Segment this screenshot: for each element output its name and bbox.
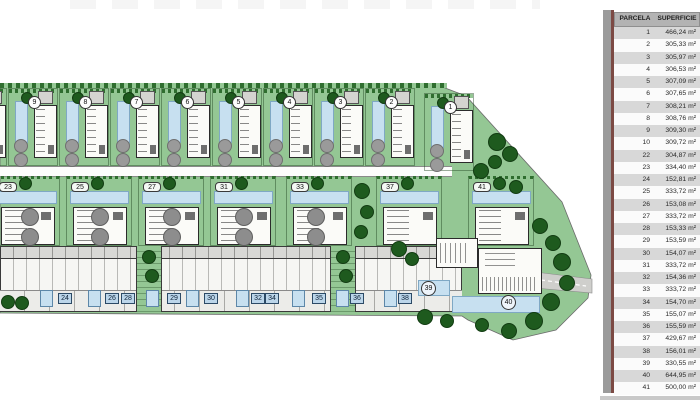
tree-icon	[19, 177, 32, 190]
patio-circle	[14, 139, 28, 153]
tree-icon	[360, 205, 374, 219]
pool	[219, 101, 232, 143]
tree-icon	[311, 177, 324, 190]
parcela-cell: 26	[614, 199, 650, 211]
plot-number-label: 39	[421, 281, 436, 296]
villa-building	[0, 105, 6, 158]
superficie-cell: 152,81 m²	[650, 174, 700, 186]
tree-icon	[493, 177, 506, 190]
table-header: PARCELA SUPERFICIE	[614, 12, 700, 27]
tree-icon	[417, 309, 433, 325]
table-row: 28 153,33 m²	[614, 223, 700, 235]
table-row: 8 308,76 m²	[614, 113, 700, 125]
superficie-cell: 308,76 m²	[650, 113, 700, 125]
tree-icon	[473, 163, 489, 179]
superficie-cell: 333,72 m²	[650, 284, 700, 296]
table-row: 22 304,87 m²	[614, 150, 700, 162]
patio-circle	[65, 139, 79, 153]
pool	[214, 191, 273, 204]
pool	[15, 101, 28, 143]
parcela-cell: 6	[614, 88, 650, 100]
parcela-cell: 7	[614, 101, 650, 113]
tree-icon	[502, 146, 518, 162]
plot-number-label: 40	[501, 295, 516, 310]
patio-circle-pair	[235, 208, 253, 246]
villa-plot: 37	[376, 176, 442, 246]
tree-icon	[145, 269, 159, 283]
parcela-cell: 3	[614, 52, 650, 64]
patio-circle	[65, 153, 79, 167]
parcela-cell: 22	[614, 150, 650, 162]
plot-number-label: 29	[167, 293, 181, 304]
table-row: 6 307,65 m²	[614, 88, 700, 100]
tree-icon	[1, 295, 15, 309]
townhouse-pool	[336, 290, 349, 307]
table-row: 30 154,07 m²	[614, 248, 700, 260]
plot-number-label: 24	[58, 293, 72, 304]
table-row: 26 153,08 m²	[614, 199, 700, 211]
villa-building	[136, 105, 159, 158]
parcela-cell: 10	[614, 137, 650, 149]
plot-number-label: 36	[350, 293, 364, 304]
tree-icon	[440, 314, 454, 328]
plot-number-label: 38	[398, 293, 412, 304]
pool	[431, 106, 444, 148]
plot-number-label: 1	[444, 101, 457, 114]
table-row: 36 155,59 m²	[614, 321, 700, 333]
plot-number-label: 6	[181, 96, 194, 109]
superficie-cell: 154,07 m²	[650, 248, 700, 260]
pool	[321, 101, 334, 143]
table-row: 40 644,95 m²	[614, 370, 700, 382]
screenshot-root: 10 9 8	[0, 0, 700, 400]
patio-circle	[269, 139, 283, 153]
superficie-cell: 333,72 m²	[650, 186, 700, 198]
parcela-cell: 40	[614, 370, 650, 382]
plot-number-label: 2	[385, 96, 398, 109]
table-row: 25 333,72 m²	[614, 186, 700, 198]
column-header-superficie: SUPERFICIE	[655, 13, 699, 26]
parcela-cell: 37	[614, 333, 650, 345]
table-row: 29 153,59 m²	[614, 235, 700, 247]
parcela-cell: 41	[614, 382, 650, 394]
superficie-cell: 304,87 m²	[650, 150, 700, 162]
plot-number-label: 28	[121, 293, 135, 304]
parcela-cell: 5	[614, 76, 650, 88]
patio-circle	[320, 153, 334, 167]
plot-number-label: 37	[381, 182, 399, 192]
parcela-cell: 34	[614, 297, 650, 309]
patio-circle	[320, 139, 334, 153]
patio-circle	[218, 153, 232, 167]
villa-plot: 3	[314, 88, 364, 166]
superficie-cell: 333,72 m²	[650, 260, 700, 272]
table-row: 33 333,72 m²	[614, 284, 700, 296]
column-header-parcela: PARCELA	[615, 13, 655, 26]
superficie-cell: 153,08 m²	[650, 199, 700, 211]
superficie-cell: 156,01 m²	[650, 346, 700, 358]
villa-building	[34, 105, 57, 158]
parcela-cell: 27	[614, 211, 650, 223]
superficie-cell: 154,36 m²	[650, 272, 700, 284]
patio-circle	[14, 153, 28, 167]
parcela-cell: 1	[614, 27, 650, 39]
plot-number-label: 31	[215, 182, 233, 192]
patio-circle-pair	[91, 208, 109, 246]
pool	[0, 191, 57, 204]
pool	[372, 101, 385, 143]
tree-icon	[553, 253, 571, 271]
tree-icon	[354, 225, 368, 239]
villa-plot: 6	[161, 88, 211, 166]
tree-icon	[509, 180, 523, 194]
plot-number-label: 9	[28, 96, 41, 109]
pool	[142, 191, 201, 204]
table-row: 27 333,72 m²	[614, 211, 700, 223]
townhouse-pool	[384, 290, 397, 307]
superficie-cell: 466,24 m²	[650, 27, 700, 39]
tree-icon	[401, 177, 414, 190]
parcela-cell: 29	[614, 235, 650, 247]
parcela-cell: 2	[614, 39, 650, 51]
plot-number-label: 27	[143, 182, 161, 192]
table-row: 10 309,72 m²	[614, 137, 700, 149]
table-row: 38 156,01 m²	[614, 346, 700, 358]
parcela-cell: 35	[614, 309, 650, 321]
table-row: 31 333,72 m²	[614, 260, 700, 272]
parcela-cell: 39	[614, 358, 650, 370]
tree-icon	[559, 275, 575, 291]
pool	[66, 101, 79, 143]
patio-circle	[430, 158, 444, 172]
villa-building	[383, 207, 437, 245]
site-plan: 10 9 8	[0, 0, 604, 400]
tree-icon	[525, 312, 543, 330]
parcela-cell: 32	[614, 272, 650, 284]
superficie-cell: 309,72 m²	[650, 137, 700, 149]
patio-circle	[167, 153, 181, 167]
table-row: 24 152,81 m²	[614, 174, 700, 186]
pool	[270, 101, 283, 143]
parcela-cell: 30	[614, 248, 650, 260]
parcela-cell: 23	[614, 162, 650, 174]
plot-number-label: 23	[0, 182, 17, 192]
superficie-cell: 333,72 m²	[650, 211, 700, 223]
superficie-cell: 305,97 m²	[650, 52, 700, 64]
parcela-cell: 36	[614, 321, 650, 333]
villa-plot: 9	[8, 88, 58, 166]
plot-number-label: 30	[204, 293, 218, 304]
villa-building	[340, 105, 363, 158]
tree-icon	[339, 269, 353, 283]
tree-icon	[336, 250, 350, 264]
table-body: 1 466,24 m² 2 305,33 m² 3 305,97 m² 4 30…	[614, 27, 700, 395]
superficie-cell: 307,65 m²	[650, 88, 700, 100]
tree-icon	[391, 241, 407, 257]
patio-circle	[218, 139, 232, 153]
superficie-cell: 644,95 m²	[650, 370, 700, 382]
table-row: 37 429,67 m²	[614, 333, 700, 345]
garage	[0, 91, 2, 104]
villa-building	[187, 105, 210, 158]
patio-circle	[167, 139, 181, 153]
parcela-cell: 33	[614, 284, 650, 296]
parcela-cell: 25	[614, 186, 650, 198]
tree-icon	[354, 183, 370, 199]
plot-number-label: 41	[473, 182, 491, 192]
tree-icon	[15, 296, 29, 310]
superficie-cell: 308,21 m²	[650, 101, 700, 113]
superficie-cell: 334,40 m²	[650, 162, 700, 174]
tree-icon	[163, 177, 176, 190]
superficie-cell: 500,00 m²	[650, 382, 700, 394]
table-row: 23 334,40 m²	[614, 162, 700, 174]
pool	[472, 191, 531, 204]
plot-number-label: 25	[71, 182, 89, 192]
table-row: 34 154,70 m²	[614, 297, 700, 309]
tree-icon	[501, 323, 517, 339]
villa-plot: 8	[59, 88, 109, 166]
table-row: 2 305,33 m²	[614, 39, 700, 51]
building-40	[478, 248, 542, 294]
villa-plot: 1	[424, 93, 474, 171]
plot-number-label: 33	[291, 182, 309, 192]
patio-circle	[371, 153, 385, 167]
villa-building	[475, 207, 529, 245]
tree-icon	[532, 218, 548, 234]
villa-building	[450, 110, 473, 163]
table-row: 4 306,53 m²	[614, 64, 700, 76]
townhouse-pool	[40, 290, 53, 307]
patio-circle	[371, 139, 385, 153]
tree-icon	[542, 293, 560, 311]
bottom-gray-strip	[600, 396, 700, 400]
villa-building	[289, 105, 312, 158]
table-row: 41 500,00 m²	[614, 382, 700, 394]
patio-circle	[116, 139, 130, 153]
villa-building	[391, 105, 414, 158]
table-row: 5 307,09 m²	[614, 76, 700, 88]
plot-number-label: 32	[251, 293, 265, 304]
townhouse-pool	[292, 290, 305, 307]
superficie-cell: 154,70 m²	[650, 297, 700, 309]
patio-circle	[269, 153, 283, 167]
table-row: 1 466,24 m²	[614, 27, 700, 39]
plot-number-label: 5	[232, 96, 245, 109]
plot-number-label: 3	[334, 96, 347, 109]
townhouse-pool	[146, 290, 159, 307]
superficie-cell: 305,33 m²	[650, 39, 700, 51]
pool	[70, 191, 129, 204]
parcela-cell: 28	[614, 223, 650, 235]
superficie-cell: 307,09 m²	[650, 76, 700, 88]
pool	[380, 191, 439, 204]
tree-icon	[142, 250, 156, 264]
plot-number-label: 8	[79, 96, 92, 109]
villa-plot: 5	[212, 88, 262, 166]
superficie-cell: 155,07 m²	[650, 309, 700, 321]
pool	[168, 101, 181, 143]
plot-number-label: 35	[312, 293, 326, 304]
parcela-cell: 24	[614, 174, 650, 186]
superficie-cell: 155,59 m²	[650, 321, 700, 333]
parcela-cell: 38	[614, 346, 650, 358]
superficie-cell: 153,59 m²	[650, 235, 700, 247]
parcela-cell: 8	[614, 113, 650, 125]
table-row: 35 155,07 m²	[614, 309, 700, 321]
building-39	[436, 238, 478, 268]
plot-number-label: 34	[265, 293, 279, 304]
superficie-cell: 330,55 m²	[650, 358, 700, 370]
table-divider-bar	[603, 10, 614, 393]
tree-icon	[91, 177, 104, 190]
townhouse-pool	[236, 290, 249, 307]
superficie-cell: 429,67 m²	[650, 333, 700, 345]
tree-icon	[405, 252, 419, 266]
plot-number-label: 7	[130, 96, 143, 109]
patio-circle-pair	[21, 208, 39, 246]
villa-plot: 7	[110, 88, 160, 166]
superficie-cell: 153,33 m²	[650, 223, 700, 235]
tree-icon	[545, 235, 561, 251]
superficie-cell: 309,30 m²	[650, 125, 700, 137]
villa-plot: 10	[0, 88, 7, 166]
superficie-cell: 306,53 m²	[650, 64, 700, 76]
table-row: 39 330,55 m²	[614, 358, 700, 370]
plot-number-label: 4	[283, 96, 296, 109]
pool	[117, 101, 130, 143]
parcel-table: PARCELA SUPERFICIE 1 466,24 m² 2 305,33 …	[614, 12, 700, 393]
villa-plot: 41	[468, 176, 534, 246]
table-row: 7 308,21 m²	[614, 101, 700, 113]
patio-circle	[116, 153, 130, 167]
pool	[290, 191, 349, 204]
plot-number-label: 26	[105, 293, 119, 304]
parcela-cell: 31	[614, 260, 650, 272]
tree-icon	[475, 318, 489, 332]
townhouse-pool	[88, 290, 101, 307]
pool-40	[452, 296, 540, 313]
tree-icon	[235, 177, 248, 190]
patio-circle	[430, 144, 444, 158]
parcela-cell: 9	[614, 125, 650, 137]
villa-plot: 2	[365, 88, 415, 166]
parcela-cell: 4	[614, 64, 650, 76]
villa-plot: 4	[263, 88, 313, 166]
table-row: 32 154,36 m²	[614, 272, 700, 284]
table-row: 3 305,97 m²	[614, 52, 700, 64]
villa-building	[85, 105, 108, 158]
townhouse-pool	[186, 290, 199, 307]
patio-circle-pair	[163, 208, 181, 246]
table-row: 9 309,30 m²	[614, 125, 700, 137]
tree-icon	[488, 155, 502, 169]
patio-circle-pair	[307, 208, 325, 246]
villa-building	[238, 105, 261, 158]
